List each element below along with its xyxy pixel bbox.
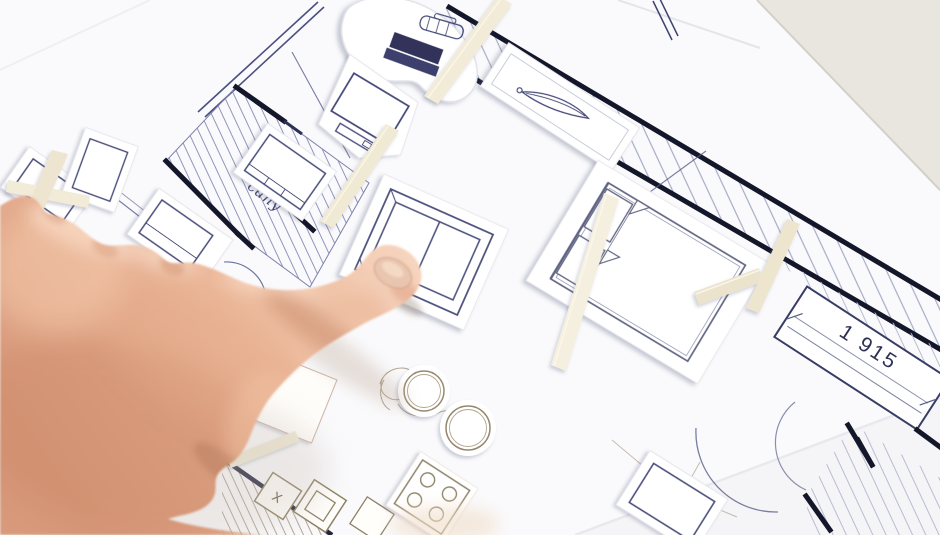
floorplan-photo: cany 1 915 <box>0 0 940 535</box>
photo-canvas: cany 1 915 <box>0 0 940 535</box>
